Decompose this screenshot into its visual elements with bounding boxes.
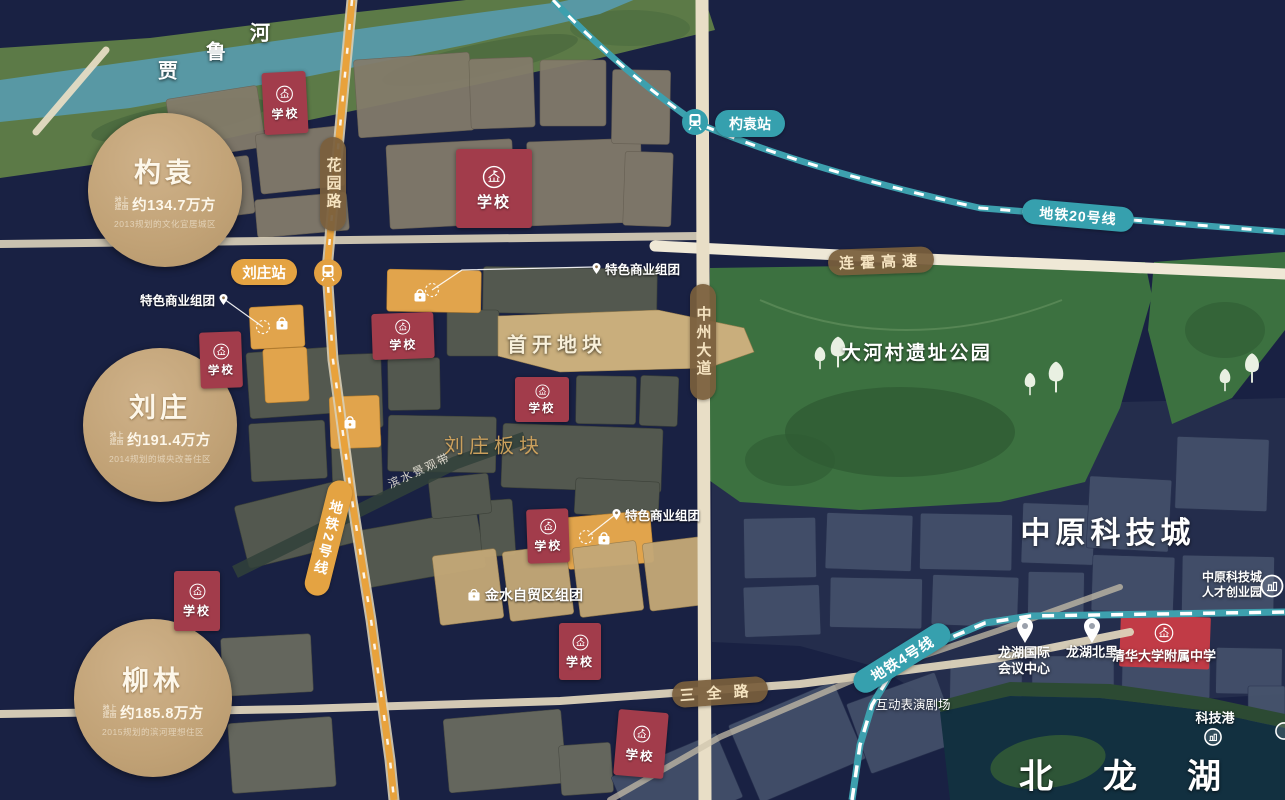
- school-label: 学校: [625, 743, 656, 764]
- conference-line2: 会议中心: [998, 661, 1050, 677]
- badge-caption: 2013规划的文化宜居城区: [114, 218, 216, 230]
- badge-meta: 地上建面: [102, 705, 117, 720]
- pin-icon: [612, 509, 621, 521]
- school-block: 学校: [456, 149, 532, 228]
- commercial-label: 特色商业组团: [605, 259, 680, 278]
- commercial-callout-south: 特色商业组团: [612, 505, 700, 524]
- school-icon: [632, 724, 652, 744]
- school-label: 学校: [183, 602, 211, 619]
- tsinghua-label: 清华大学附属中学: [1112, 650, 1216, 665]
- badge-meta: 地上建面: [114, 197, 129, 212]
- school-icon: [189, 583, 206, 600]
- conference-line1: 龙湖国际: [998, 645, 1050, 661]
- zhongzhou-avenue-pill: 中州大道: [690, 284, 716, 400]
- school-label: 学校: [208, 361, 236, 378]
- school-label: 学校: [529, 400, 556, 416]
- school-label: 学校: [389, 336, 418, 354]
- school-icon: [482, 165, 506, 189]
- school-block: 学校: [515, 377, 569, 422]
- river-name-char: 河: [250, 23, 270, 46]
- school-label: 学校: [566, 653, 594, 670]
- school-icon: [394, 319, 411, 336]
- badge-name: 杓袁: [134, 151, 196, 190]
- liuzhuang-plate-label: 刘庄板块: [444, 436, 544, 459]
- commercial-callout-north: 特色商业组团: [592, 259, 680, 278]
- school-block: 学校: [559, 623, 601, 680]
- school-block: 学校: [174, 571, 220, 631]
- badge-meta: 地上建面: [109, 432, 124, 447]
- briefcase-icon: [467, 589, 481, 602]
- school-label: 学校: [534, 537, 563, 555]
- shaoyuan-station-pill: 杓袁站: [715, 110, 785, 137]
- huayuan-road-pill: 花园路: [320, 137, 346, 231]
- school-label: 学校: [271, 104, 300, 122]
- tech-port-label: 科技港: [1195, 712, 1234, 727]
- liuzhuang-station-pill: 刘庄站: [231, 259, 297, 285]
- beili-label: 龙湖北里: [1066, 646, 1118, 661]
- school-block: 学校: [526, 508, 570, 563]
- school-icon: [275, 84, 294, 103]
- tech-city-title: 中原科技城: [1021, 517, 1196, 552]
- commercial-callout-west: 特色商业组团: [140, 290, 228, 309]
- badge-caption: 2014规划的城央改善住区: [109, 453, 211, 465]
- jinshui-cluster-label: 金水自贸区组团: [467, 585, 583, 605]
- badge-caption: 2015规划的滨河理想住区: [102, 726, 204, 738]
- school-label: 学校: [477, 191, 511, 212]
- tsinghua-icon: [1154, 623, 1174, 643]
- talent-park-icon: [1259, 573, 1285, 599]
- conference-label: 龙湖国际 会议中心: [998, 645, 1050, 677]
- edge-port-icon: [1274, 721, 1285, 741]
- north-longhu-title: 北龙湖: [1019, 758, 1271, 797]
- badge-name: 柳林: [122, 659, 184, 698]
- badge-shaoyuan: 杓袁 地上建面 约134.7万方 2013规划的文化宜居城区: [88, 113, 242, 267]
- pin-icon: [592, 263, 601, 275]
- school-block: 学校: [261, 71, 308, 135]
- conference-pin-icon: [1015, 616, 1035, 644]
- commercial-label: 特色商业组团: [625, 505, 700, 524]
- talent-park-line2: 人才创业园: [1202, 585, 1262, 600]
- pin-icon: [219, 294, 228, 306]
- shaoyuan-station-icon: [682, 109, 708, 135]
- badge-area: 约185.8万方: [120, 702, 204, 723]
- badge-area: 约134.7万方: [132, 194, 216, 215]
- dahecun-park-label: 大河村遗址公园: [842, 343, 993, 365]
- map-canvas: 贾 鲁 河 杓袁 地上建面 约134.7万方 2013规划的文化宜居城区 刘庄 …: [0, 0, 1285, 800]
- lianhuo-expressway-pill: 连霍高速: [828, 246, 935, 276]
- badge-name: 刘庄: [129, 386, 191, 425]
- talent-park-label: 中原科技城 人才创业园: [1202, 570, 1262, 600]
- commercial-label: 特色商业组团: [140, 290, 215, 309]
- river-name-char: 鲁: [206, 42, 226, 65]
- school-icon: [572, 634, 589, 651]
- talent-park-line1: 中原科技城: [1202, 570, 1262, 585]
- school-icon: [535, 384, 550, 399]
- liuzhuang-station-icon: [314, 259, 342, 287]
- shoukai-plot-label: 首开地块: [507, 335, 607, 358]
- theater-label: 互动表演剧场: [875, 698, 950, 712]
- river-name-char: 贾: [158, 61, 178, 84]
- badge-area: 约191.4万方: [127, 429, 211, 450]
- school-block: 学校: [371, 312, 435, 360]
- school-icon: [212, 342, 230, 360]
- school-block: 学校: [613, 709, 669, 779]
- badge-liulin: 柳林 地上建面 约185.8万方 2015规划的滨河理想住区: [74, 619, 232, 777]
- jinshui-text: 金水自贸区组团: [485, 585, 583, 605]
- tech-port-icon: [1203, 727, 1223, 747]
- beili-pin-icon: [1082, 616, 1102, 644]
- school-block: 学校: [199, 331, 243, 388]
- school-icon: [539, 518, 557, 536]
